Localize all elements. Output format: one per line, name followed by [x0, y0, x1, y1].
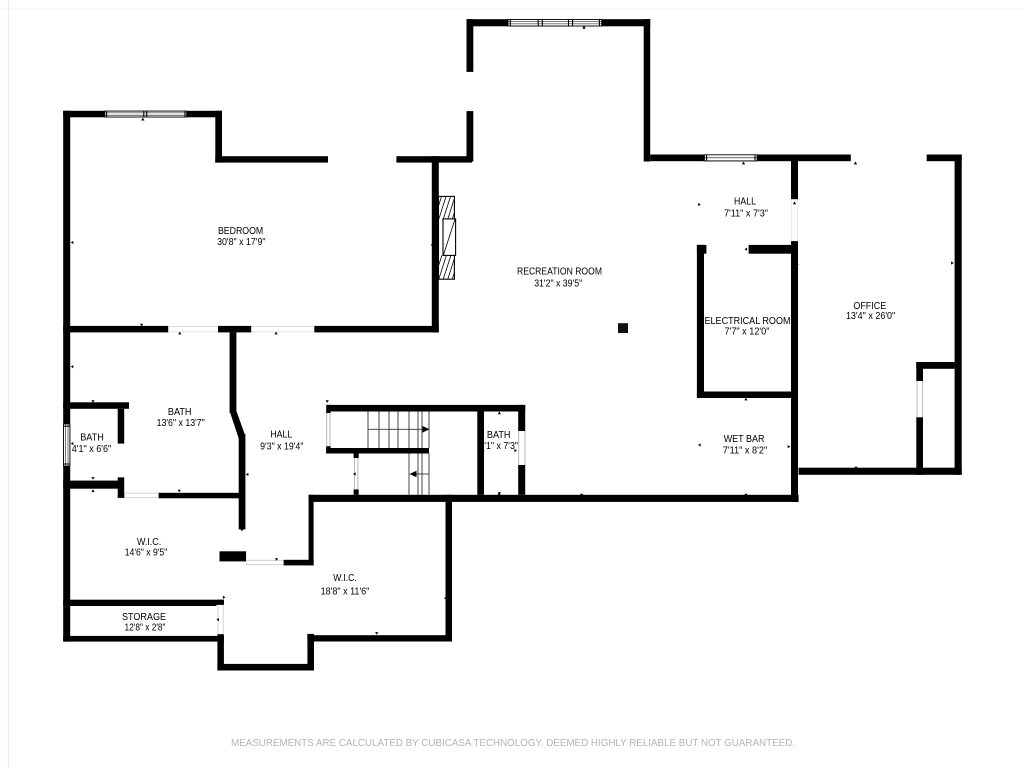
svg-text:RECREATION ROOM: RECREATION ROOM	[517, 267, 602, 278]
svg-text:30'8" x 17'9": 30'8" x 17'9"	[217, 237, 266, 248]
svg-text:7'7" x 12'0": 7'7" x 12'0"	[725, 326, 771, 337]
svg-text:9'3" x 19'4": 9'3" x 19'4"	[260, 442, 304, 453]
svg-text:7'11" x 7'3": 7'11" x 7'3"	[724, 209, 769, 220]
svg-text:12'8" x 2'8": 12'8" x 2'8"	[125, 623, 166, 634]
svg-text:W.I.C.: W.I.C.	[137, 537, 161, 548]
svg-text:BATH: BATH	[487, 430, 511, 441]
svg-text:3'1" x 7'3": 3'1" x 7'3"	[479, 441, 518, 452]
svg-text:13'6" x 13'7": 13'6" x 13'7"	[157, 418, 206, 429]
svg-text:WET BAR: WET BAR	[724, 434, 765, 445]
svg-text:ELECTRICAL ROOM: ELECTRICAL ROOM	[705, 316, 791, 327]
svg-text:HALL: HALL	[270, 430, 292, 441]
svg-text:STORAGE: STORAGE	[122, 612, 166, 623]
svg-text:W.I.C.: W.I.C.	[333, 573, 356, 584]
svg-text:18'8" x 11'6": 18'8" x 11'6"	[321, 587, 370, 598]
svg-text:MEASUREMENTS ARE CALCULATED BY: MEASUREMENTS ARE CALCULATED BY CUBICASA …	[231, 738, 795, 749]
svg-text:HALL: HALL	[734, 197, 756, 208]
svg-text:13'4" x 26'0": 13'4" x 26'0"	[846, 311, 896, 322]
svg-text:BATH: BATH	[168, 407, 192, 418]
svg-text:4'1" x 6'6": 4'1" x 6'6"	[72, 444, 112, 455]
svg-text:BATH: BATH	[80, 433, 104, 444]
svg-text:BEDROOM: BEDROOM	[218, 226, 263, 237]
svg-text:14'6" x 9'5": 14'6" x 9'5"	[125, 548, 168, 559]
svg-text:31'2" x 39'5": 31'2" x 39'5"	[534, 278, 582, 289]
svg-text:7'11" x 8'2": 7'11" x 8'2"	[723, 445, 768, 456]
